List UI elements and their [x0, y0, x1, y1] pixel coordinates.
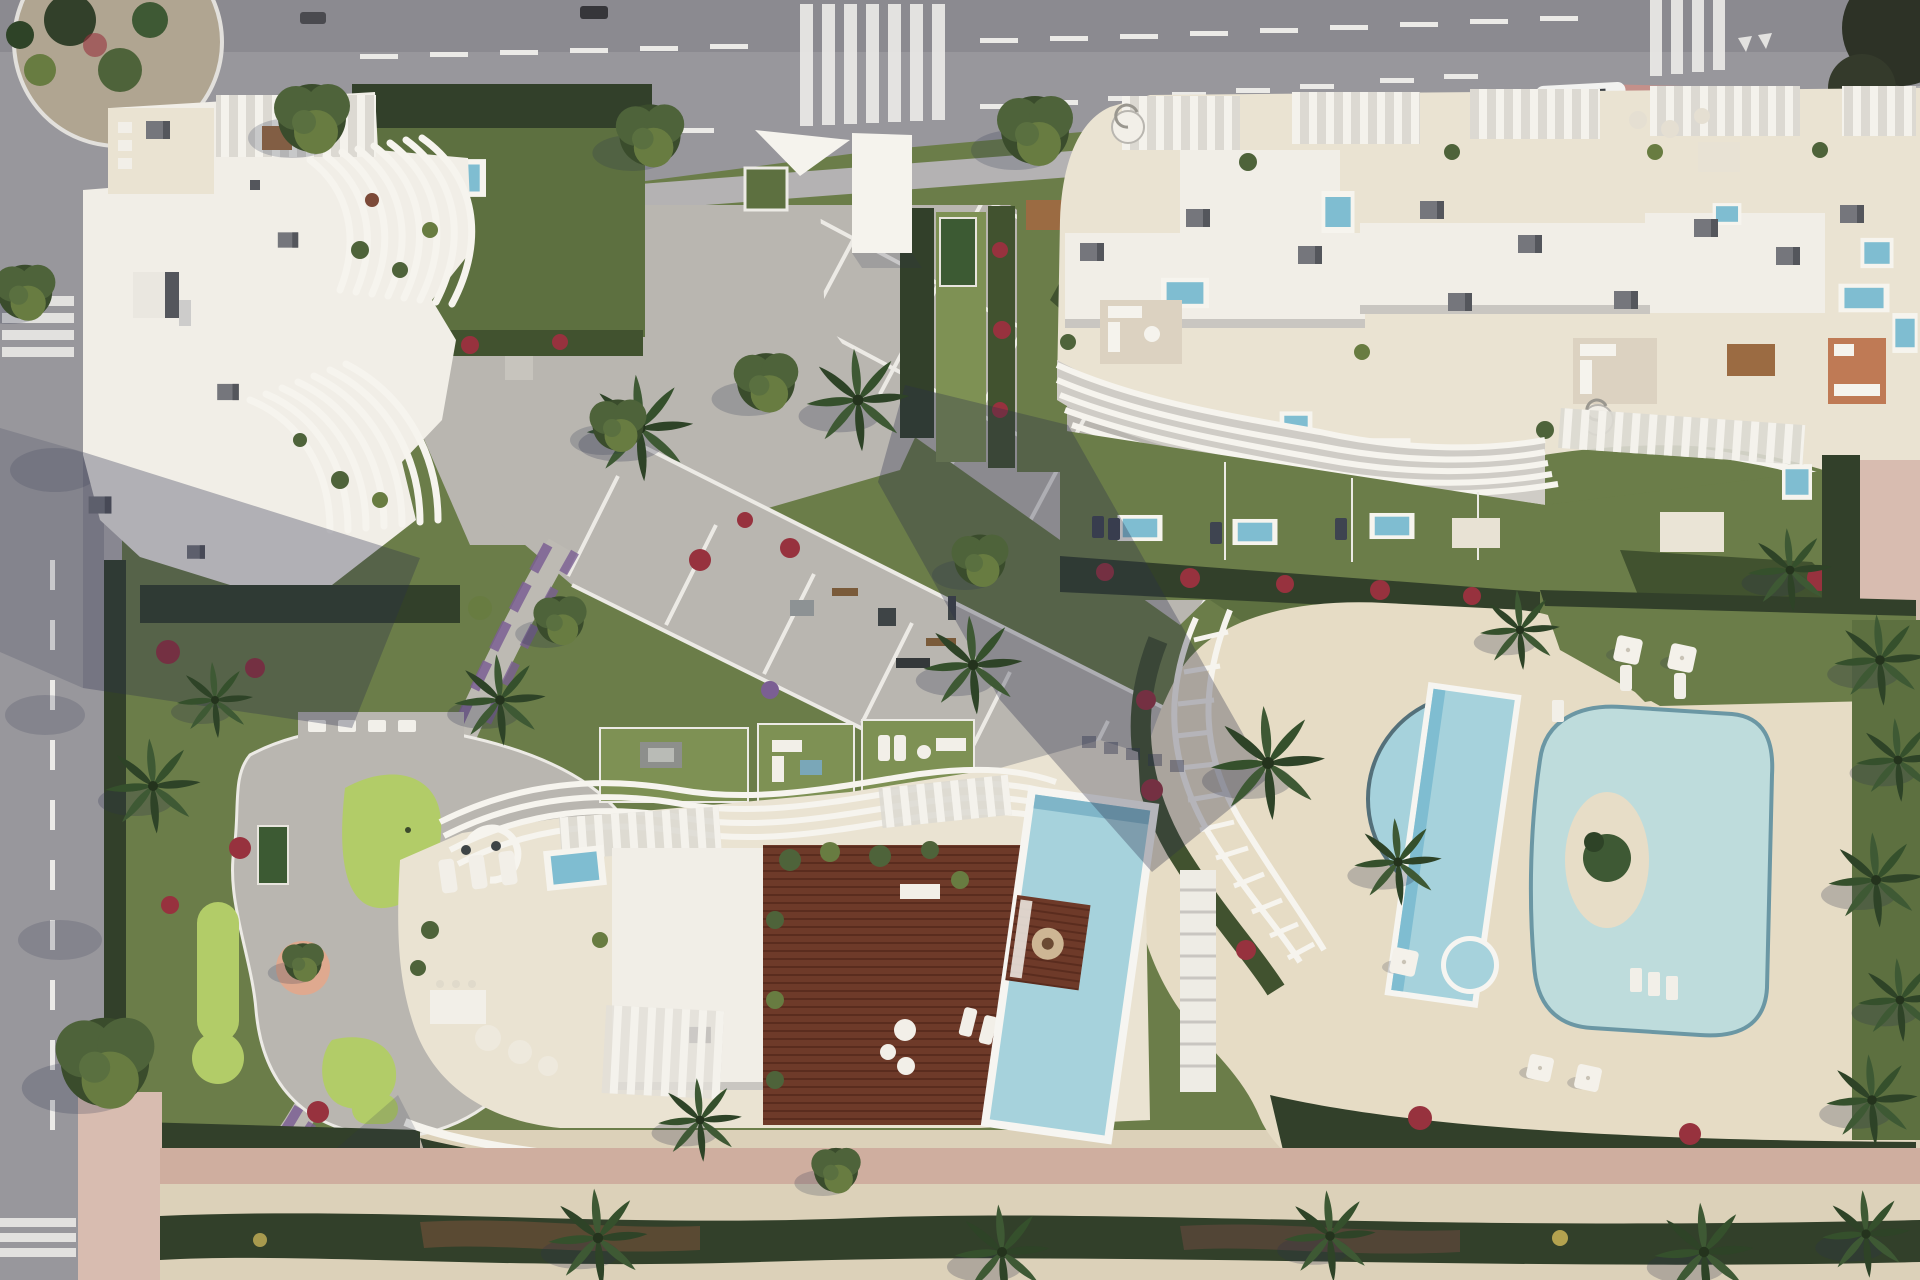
flower-bed-red	[1236, 940, 1256, 960]
fire-lounge	[508, 1040, 532, 1064]
bougainvillea	[1408, 1106, 1432, 1130]
flower-bed-red	[780, 538, 800, 558]
dune-grass	[253, 1233, 267, 1247]
aerial-render	[0, 0, 1920, 1280]
shrub	[468, 596, 492, 620]
planter	[592, 932, 608, 948]
garden-pool	[1370, 513, 1415, 539]
s-colonnade	[602, 1005, 724, 1099]
garden-pool	[1233, 519, 1278, 545]
kids-pool	[1446, 941, 1494, 989]
road-tree-shadow	[5, 695, 85, 735]
fire-lounge	[475, 1025, 501, 1051]
flower-bed-red	[307, 1101, 329, 1123]
shadow-on-road	[0, 428, 83, 688]
terrace-chairs	[118, 122, 132, 169]
entrance-canopy-slab	[852, 133, 912, 253]
scene-canvas	[0, 0, 1920, 1280]
nw-hedge	[352, 84, 652, 128]
east-sidewalk	[1860, 460, 1920, 620]
s-stairs	[1180, 870, 1216, 1092]
golf-lane	[197, 902, 239, 1042]
flower-bed-red	[1463, 587, 1481, 605]
planter	[410, 960, 426, 976]
golf-lane-bulb	[192, 1032, 244, 1084]
planter	[421, 921, 439, 939]
ac-unit	[146, 121, 170, 139]
golf-hole	[405, 827, 411, 833]
flower-bed-red	[552, 334, 568, 350]
flower-bed-red	[229, 837, 251, 859]
garden-pool	[1782, 464, 1812, 500]
timber-dining-table	[1026, 200, 1064, 230]
flower-bed-red	[161, 896, 179, 914]
lounger	[1620, 665, 1632, 691]
dune-grass	[1552, 1230, 1568, 1246]
garden-shed	[258, 826, 288, 884]
s-pool-island	[1005, 895, 1090, 990]
car-dark-2	[300, 12, 326, 24]
square-planter	[745, 168, 787, 210]
bougainvillea	[1679, 1123, 1701, 1145]
lounger	[1674, 673, 1686, 699]
flower-bed-red	[992, 242, 1008, 258]
pink-sidewalk	[78, 1092, 162, 1280]
flower-bed-red	[737, 512, 753, 528]
flower-bed-red	[1180, 568, 1200, 588]
garden-dining	[1452, 518, 1500, 548]
flower-bed-red	[461, 336, 479, 354]
hedge-wall-east	[1822, 455, 1860, 615]
island-plants	[1584, 832, 1604, 852]
flower-bed-red	[1276, 575, 1294, 593]
canopy-shadow	[852, 253, 922, 268]
road-tree-shadow	[18, 920, 102, 960]
flower-bed-red	[993, 321, 1011, 339]
outdoor-rug	[800, 760, 822, 775]
flower-bed-red	[1370, 580, 1390, 600]
top-road-far-lane	[0, 0, 1920, 52]
garden-lounge	[1660, 512, 1724, 552]
promenade-path	[160, 1148, 1920, 1184]
garden-shed	[940, 218, 976, 286]
flower-bed-red	[689, 549, 711, 571]
car-dark	[580, 6, 608, 19]
dining-table	[430, 990, 486, 1024]
fire-lounge	[538, 1056, 558, 1076]
crosswalk-left-lower	[0, 1218, 76, 1257]
building-ne	[1057, 86, 1920, 510]
flower-bed-purple	[761, 681, 779, 699]
